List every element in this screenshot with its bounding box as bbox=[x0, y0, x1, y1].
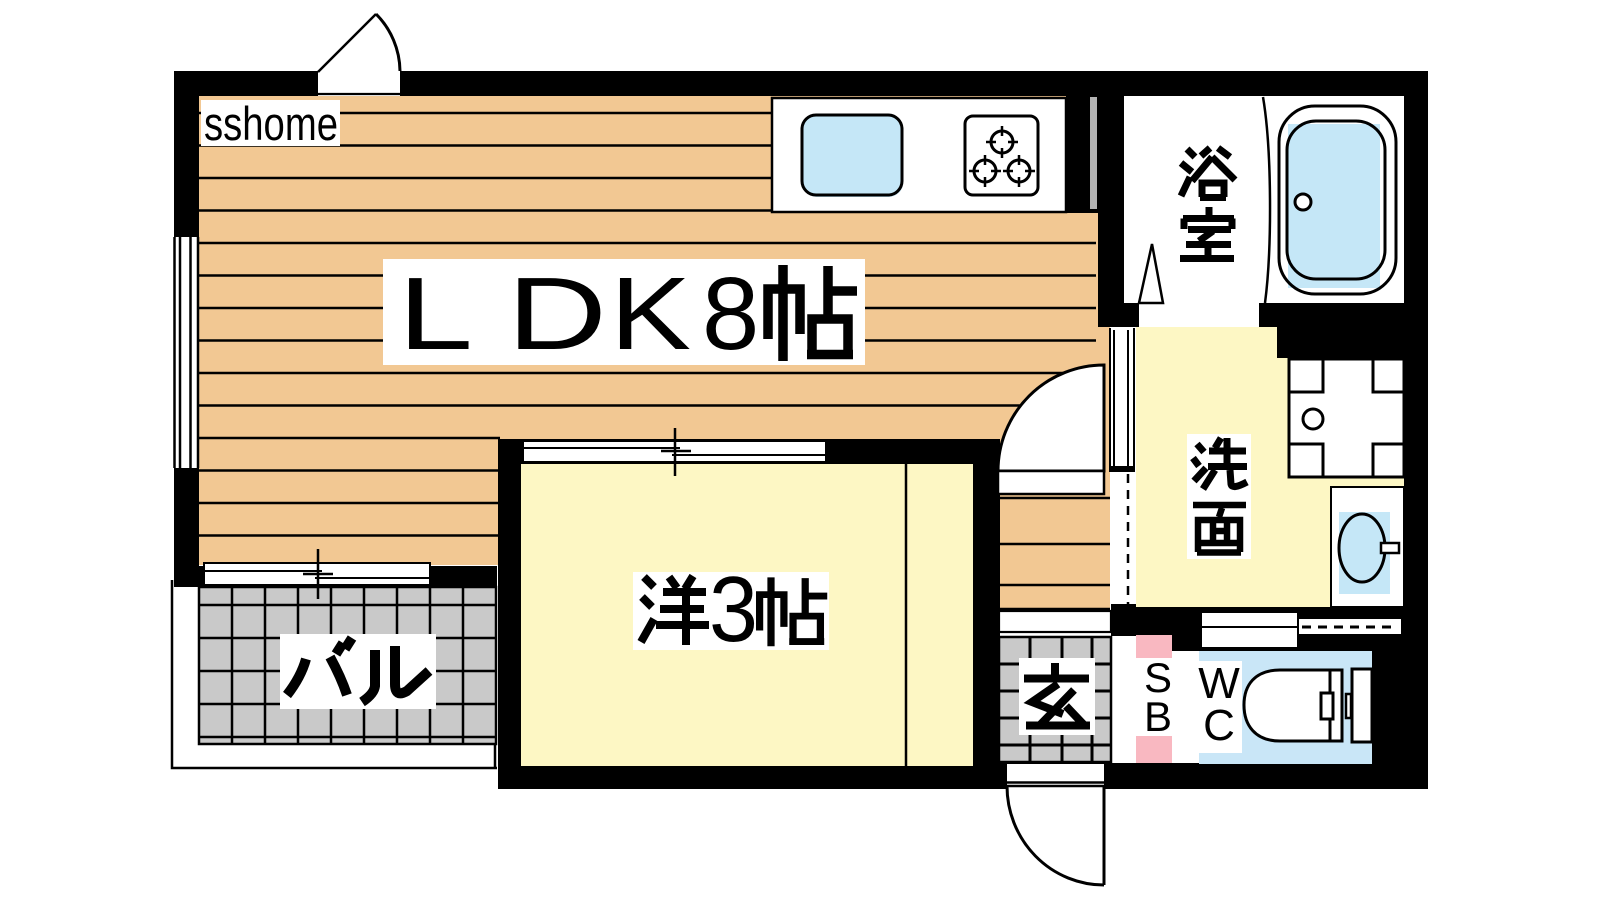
svg-text:3: 3 bbox=[709, 558, 758, 661]
svg-text:sshome: sshome bbox=[204, 97, 338, 150]
svg-text:L: L bbox=[398, 256, 473, 371]
svg-text:8: 8 bbox=[702, 256, 759, 371]
svg-text:D: D bbox=[507, 256, 607, 371]
svg-text:C: C bbox=[1203, 701, 1235, 750]
svg-text:B: B bbox=[1144, 693, 1172, 740]
svg-text:K: K bbox=[610, 256, 691, 371]
